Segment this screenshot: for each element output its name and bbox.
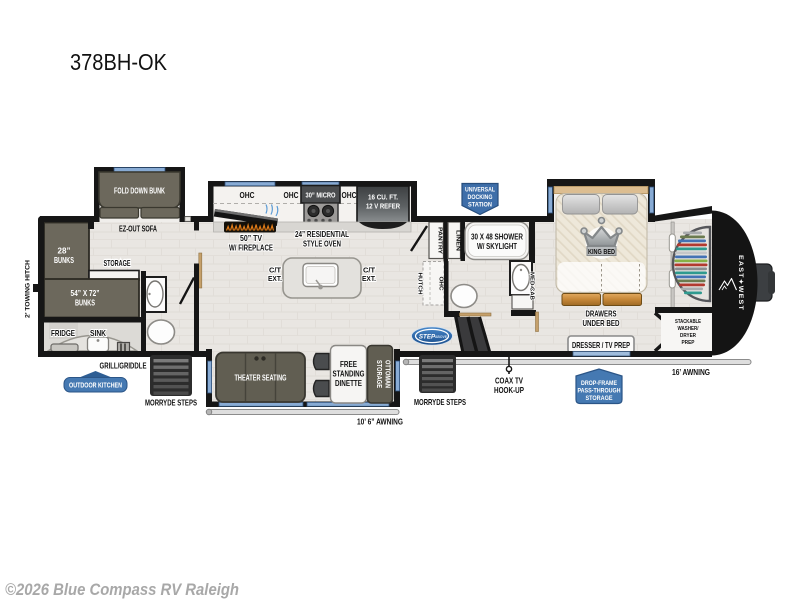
svg-text:OTTOMAN: OTTOMAN — [384, 360, 391, 388]
svg-text:54” X 72”: 54” X 72” — [71, 289, 100, 298]
svg-text:LINEN: LINEN — [455, 230, 461, 251]
svg-text:SINK: SINK — [90, 328, 106, 338]
svg-text:KING BED: KING BED — [588, 247, 615, 256]
svg-text:DINETTE: DINETTE — [335, 379, 363, 388]
svg-text:DRYER: DRYER — [680, 333, 697, 339]
svg-text:2’ TOWING HITCH: 2’ TOWING HITCH — [25, 260, 32, 318]
svg-text:378BH-OK: 378BH-OK — [70, 49, 168, 75]
svg-text:MED CAB: MED CAB — [529, 272, 535, 300]
svg-text:MORRYDE STEPS: MORRYDE STEPS — [145, 398, 197, 408]
svg-text:EXT.: EXT. — [362, 274, 376, 283]
svg-text:PREP: PREP — [682, 340, 695, 346]
svg-text:BUNKS: BUNKS — [54, 256, 74, 265]
svg-text:DROP-FRAME: DROP-FRAME — [581, 380, 617, 387]
svg-text:10’ 6” AWNING: 10’ 6” AWNING — [357, 417, 403, 427]
svg-text:DRESSER / TV PREP: DRESSER / TV PREP — [572, 340, 630, 350]
svg-text:W/ FIREPLACE: W/ FIREPLACE — [229, 243, 273, 253]
svg-text:OHC: OHC — [438, 277, 444, 292]
svg-text:FREE: FREE — [340, 360, 358, 369]
svg-text:THEATER SEATING: THEATER SEATING — [235, 373, 287, 383]
svg-text:OHC: OHC — [342, 191, 357, 200]
svg-text:MORRYDE STEPS: MORRYDE STEPS — [414, 397, 466, 407]
svg-text:30” MICRO: 30” MICRO — [306, 191, 336, 200]
svg-text:16 CU. FT.: 16 CU. FT. — [368, 193, 398, 202]
svg-text:STEP: STEP — [419, 334, 436, 341]
svg-text:DOCKING: DOCKING — [468, 194, 493, 201]
svg-text:UNIVERSAL: UNIVERSAL — [465, 187, 495, 194]
svg-text:GRILL/GRIDDLE: GRILL/GRIDDLE — [100, 361, 147, 371]
svg-text:STATION: STATION — [468, 202, 492, 209]
svg-text:STORAGE: STORAGE — [375, 360, 382, 388]
svg-text:©2026 Blue Compass RV Raleigh: ©2026 Blue Compass RV Raleigh — [5, 580, 239, 599]
svg-text:W/ SKYLIGHT: W/ SKYLIGHT — [477, 242, 517, 251]
svg-text:EZ-OUT SOFA: EZ-OUT SOFA — [119, 224, 157, 234]
svg-text:COAX TV: COAX TV — [495, 376, 523, 386]
svg-text:STORAGE: STORAGE — [586, 395, 613, 402]
svg-text:STORAGE: STORAGE — [104, 258, 131, 268]
svg-text:24” RESIDENTIAL: 24” RESIDENTIAL — [295, 229, 349, 239]
svg-text:PANTRY: PANTRY — [437, 227, 443, 254]
svg-text:OHC: OHC — [284, 191, 299, 200]
svg-text:EXT.: EXT. — [268, 274, 282, 283]
svg-text:FRIDGE: FRIDGE — [51, 328, 75, 338]
svg-text:50” TV: 50” TV — [240, 233, 262, 243]
svg-text:ABOVE: ABOVE — [435, 335, 448, 339]
svg-text:UNDER BED: UNDER BED — [583, 318, 620, 328]
svg-text:FOLD DOWN BUNK: FOLD DOWN BUNK — [114, 186, 166, 196]
svg-text:PASS-THROUGH: PASS-THROUGH — [578, 388, 621, 395]
svg-text:28”: 28” — [58, 247, 71, 256]
svg-text:HOOK-UP: HOOK-UP — [494, 385, 524, 395]
svg-text:HUTCH: HUTCH — [417, 273, 423, 295]
svg-text:STANDING: STANDING — [333, 370, 365, 379]
svg-text:EAST✦WEST: EAST✦WEST — [737, 255, 744, 311]
svg-text:OHC: OHC — [240, 191, 255, 200]
svg-text:STYLE OVEN: STYLE OVEN — [303, 239, 341, 249]
svg-text:12 V REFER: 12 V REFER — [366, 202, 401, 211]
svg-text:OUTDOOR KITCHEN: OUTDOOR KITCHEN — [69, 381, 122, 390]
svg-text:WASHER/: WASHER/ — [678, 326, 699, 332]
svg-text:30 X 48 SHOWER: 30 X 48 SHOWER — [471, 233, 523, 242]
svg-text:DRAWERS: DRAWERS — [586, 309, 617, 319]
svg-text:BUNKS: BUNKS — [75, 299, 95, 308]
svg-text:STACKABLE: STACKABLE — [675, 319, 701, 325]
svg-text:16’ AWNING: 16’ AWNING — [672, 367, 710, 377]
